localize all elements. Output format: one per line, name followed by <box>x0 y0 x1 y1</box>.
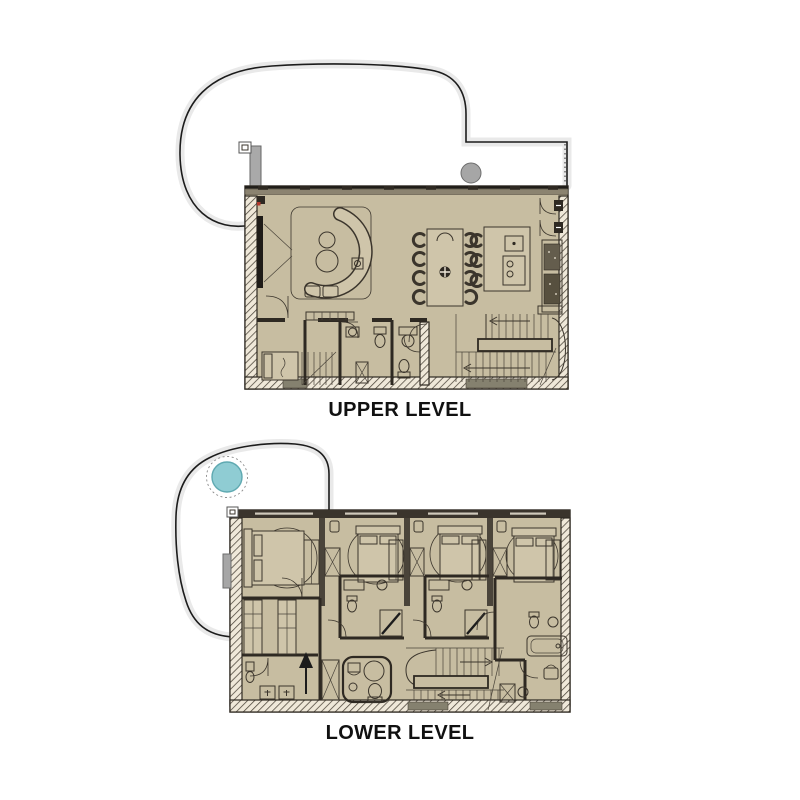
terrace-wall-stub <box>239 142 261 190</box>
lower-level-plan <box>168 430 582 722</box>
kitchen-counter <box>538 240 562 314</box>
hot-tub-icon <box>207 457 248 498</box>
daybed-icon <box>262 352 298 380</box>
terrace-column-icon <box>461 163 481 183</box>
left-wall <box>245 196 257 389</box>
upper-level-label: UPPER LEVEL <box>0 399 800 422</box>
lower-level-label: LOWER LEVEL <box>0 722 800 745</box>
upper-level-plan <box>168 55 582 400</box>
floorplan-page: UPPER LEVEL <box>0 0 800 800</box>
